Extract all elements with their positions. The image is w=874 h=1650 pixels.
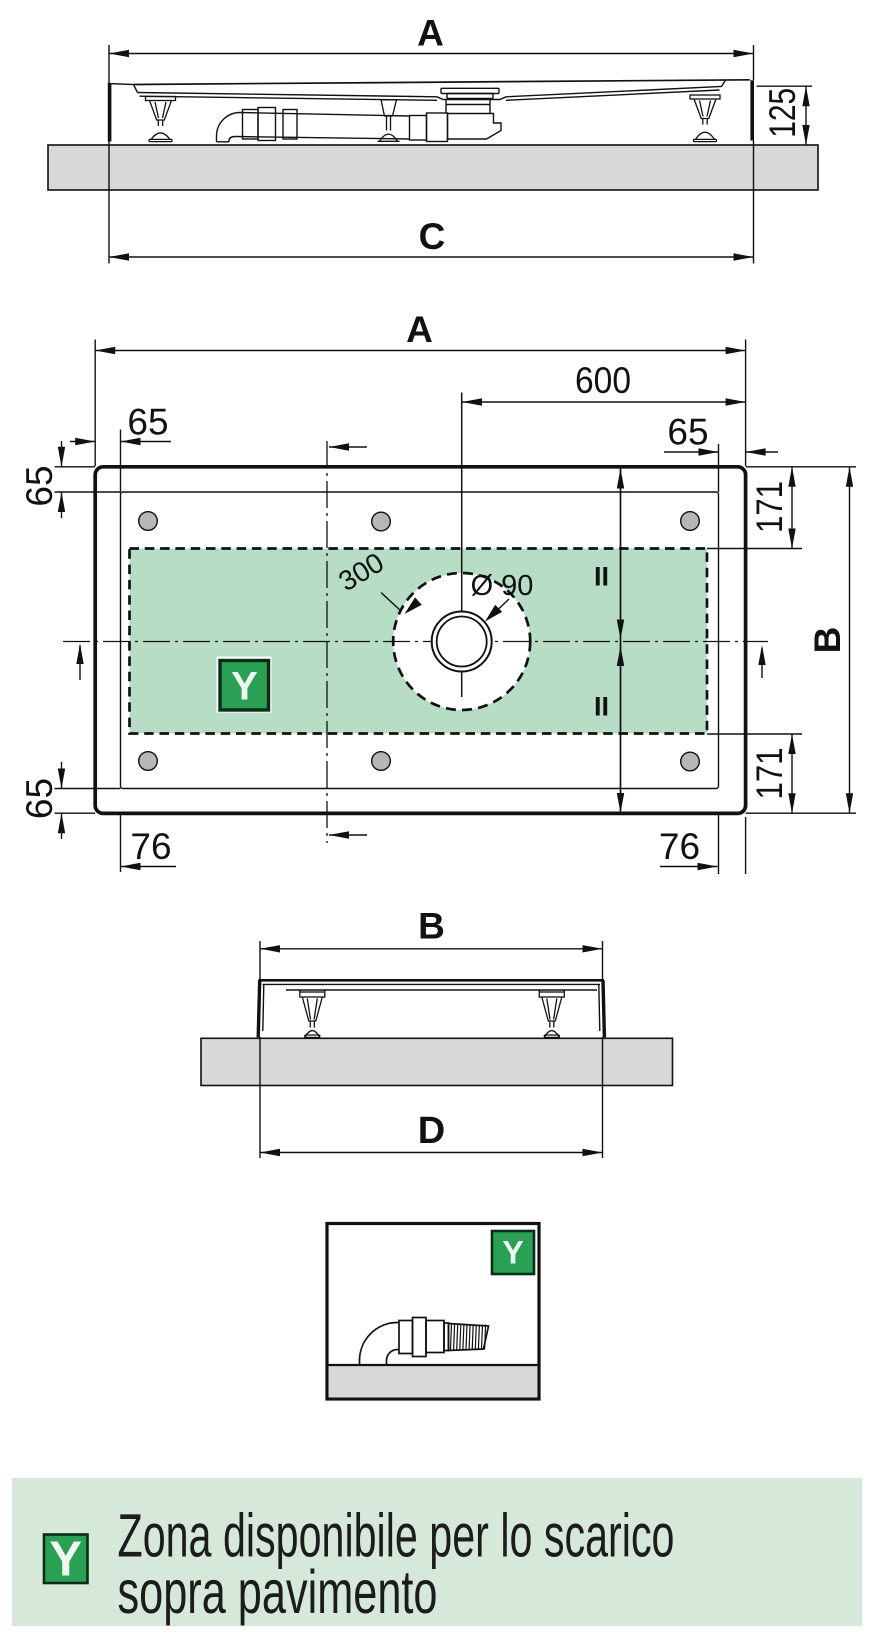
svg-text:II: II bbox=[594, 562, 609, 592]
svg-text:D: D bbox=[418, 1110, 445, 1152]
svg-text:C: C bbox=[419, 216, 446, 257]
svg-text:A: A bbox=[406, 309, 433, 350]
svg-text:76: 76 bbox=[659, 826, 700, 867]
svg-text:76: 76 bbox=[130, 826, 171, 867]
svg-text:65: 65 bbox=[667, 412, 708, 453]
svg-text:II: II bbox=[594, 692, 609, 722]
svg-text:65: 65 bbox=[19, 778, 60, 819]
svg-text:A: A bbox=[417, 13, 444, 54]
svg-text:sopra pavimento: sopra pavimento bbox=[118, 1558, 438, 1626]
svg-text:B: B bbox=[807, 627, 848, 654]
svg-text:Ø 90: Ø 90 bbox=[471, 570, 534, 602]
svg-text:171: 171 bbox=[749, 481, 790, 533]
svg-text:600: 600 bbox=[575, 360, 631, 401]
svg-text:65: 65 bbox=[127, 402, 168, 443]
svg-text:B: B bbox=[418, 906, 445, 947]
svg-text:65: 65 bbox=[19, 465, 60, 506]
svg-text:Y: Y bbox=[231, 665, 258, 709]
svg-text:125: 125 bbox=[762, 88, 803, 138]
svg-text:Y: Y bbox=[49, 1533, 82, 1587]
svg-text:171: 171 bbox=[749, 748, 790, 800]
svg-text:Y: Y bbox=[502, 1235, 523, 1271]
